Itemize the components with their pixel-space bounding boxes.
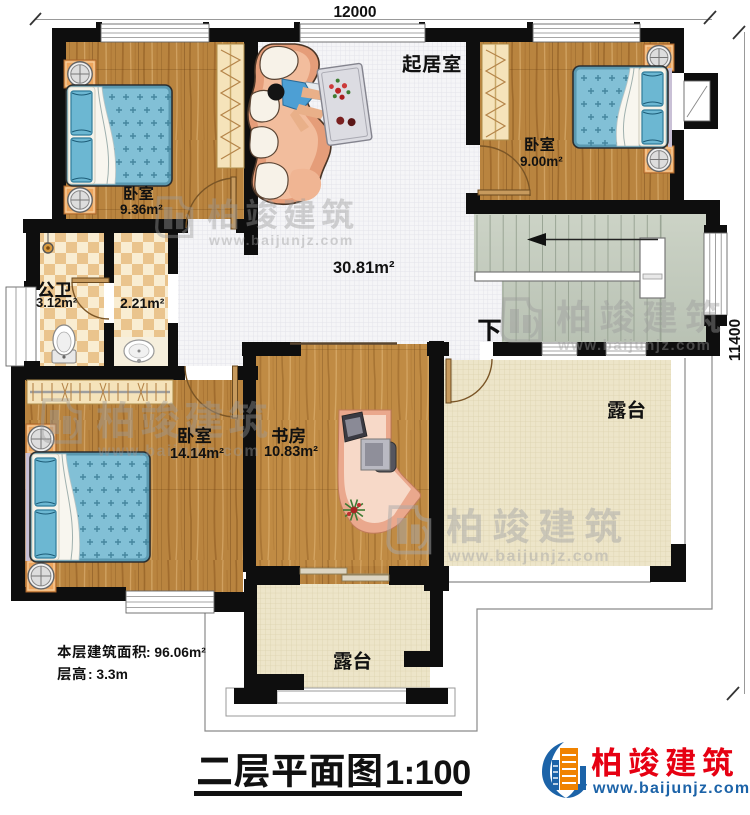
svg-text:9.00m²: 9.00m² [520,154,563,169]
svg-text:3.12m²: 3.12m² [36,295,78,310]
svg-text:10.83m²: 10.83m² [264,444,318,460]
svg-text:11400: 11400 [727,319,744,361]
svg-text:30.81m²: 30.81m² [333,259,395,277]
svg-text:: 3.3m: : 3.3m [88,667,128,682]
svg-text:www.baijunjz.com: www.baijunjz.com [592,780,750,797]
svg-text:www.baijunjz.com: www.baijunjz.com [557,337,711,354]
svg-text:14.14m²: 14.14m² [170,446,224,462]
svg-text:www.baijunjz.com: www.baijunjz.com [447,548,610,565]
svg-text:12000: 12000 [333,4,376,21]
svg-text:: 96.06m²: : 96.06m² [146,645,206,660]
svg-text:www.baijunjz.com: www.baijunjz.com [208,232,354,248]
svg-text:9.36m²: 9.36m² [120,202,163,217]
svg-text:2.21m²: 2.21m² [120,295,165,311]
svg-text:1:100: 1:100 [385,754,471,792]
